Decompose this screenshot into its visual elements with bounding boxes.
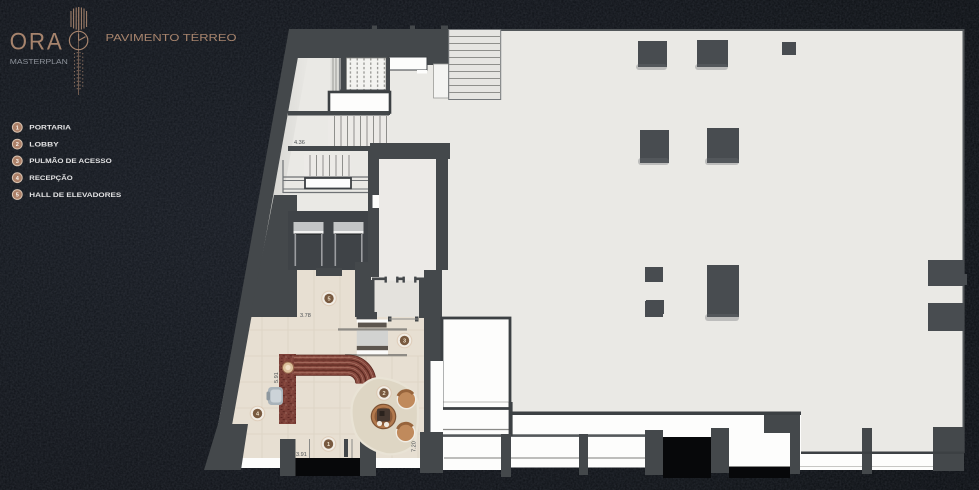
svg-text:2: 2 (382, 391, 385, 397)
svg-text:4.36: 4.36 (294, 140, 305, 146)
svg-text:5: 5 (327, 297, 330, 303)
svg-text:3: 3 (403, 339, 406, 345)
svg-text:7.20: 7.20 (412, 441, 418, 452)
svg-text:3.78: 3.78 (300, 313, 311, 319)
svg-text:3.91: 3.91 (296, 452, 307, 458)
svg-text:1: 1 (327, 442, 330, 448)
